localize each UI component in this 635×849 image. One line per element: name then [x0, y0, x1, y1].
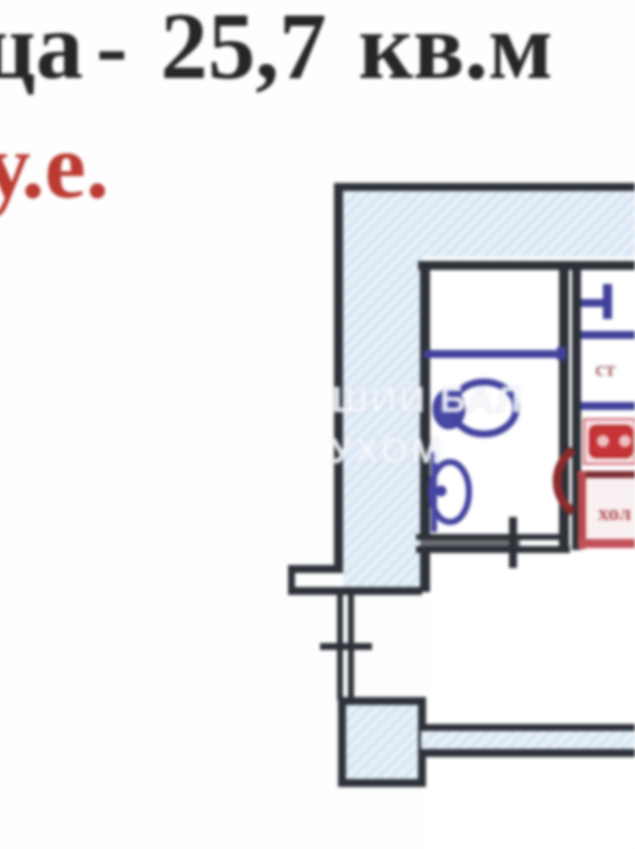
svg-text:ст: ст — [595, 356, 616, 381]
svg-text:хол: хол — [598, 500, 631, 525]
